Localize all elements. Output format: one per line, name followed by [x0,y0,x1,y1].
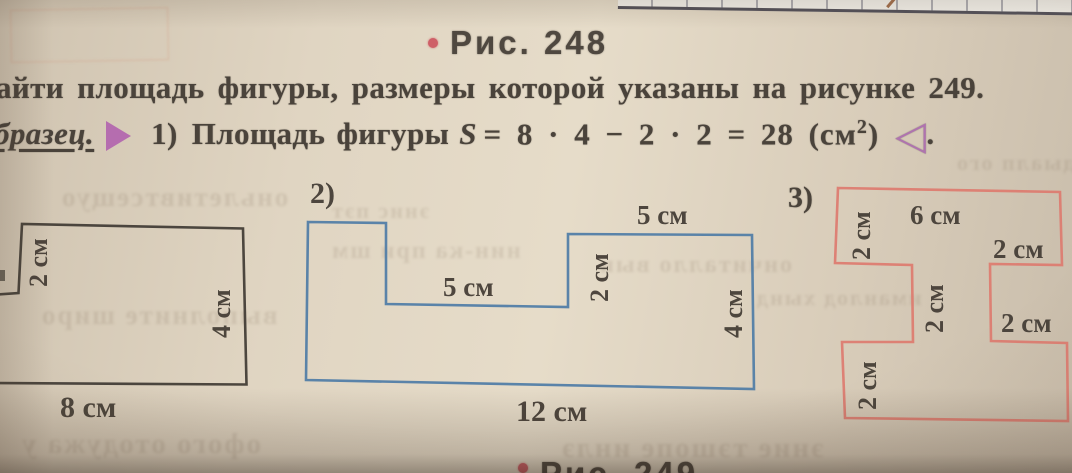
bleedthrough-text: оньлетивтсещуо [60,182,288,213]
task-text: айти площадь фигуры, размеры которой ука… [0,70,984,106]
fig1-side-label: 4 см [207,289,236,338]
end-period: . [926,116,934,152]
fig1-notch-label: 2 см [24,238,53,287]
item-number: 1) [151,116,178,152]
fig2-number: 2) [310,177,335,210]
figure-1-shape: 2 см 4 см 8 см [0,210,270,435]
fig3-right-notch-label: 2 см [1001,308,1052,338]
fig3-number: 3) [788,181,813,215]
example-start-marker-icon [106,121,131,151]
figure-3-shape: 2 см 6 см 2 см 2 см 2 см 2 см [820,175,1072,440]
caption-label: Рис. 249 [540,455,698,473]
fig2-bottom-label: 12 см [516,395,587,428]
fig3-column-label: 2 см [920,284,949,333]
area-formula: S= 8 · 4 − 2 · 2 = 28 (см2) [459,116,879,152]
example-line: бразец. 1) Площадь фигуры S= 8 · 4 − 2 ·… [0,116,934,152]
caption-label: Рис. 248 [450,24,608,62]
bleedthrough-text: тыдыалп ого [955,150,1072,176]
fig3-right-overhang-label: 2 см [993,234,1044,264]
red-bullet-icon [428,38,438,48]
cropped-label-fragment [0,270,5,281]
bleedthrough-frame [10,7,170,64]
fig3-top-width-label: 6 см [910,200,961,230]
item-text: Площадь фигуры [192,116,449,152]
fig3-topbar-height-label: 2 см [847,211,876,260]
fig2-side-label: 4 см [719,289,748,338]
formula-close: ) [868,116,879,151]
formula-variable: S [459,116,477,151]
fig2-middle-label: 5 см [443,272,494,302]
sample-word: бразец. [0,116,94,152]
formula-superscript: 2 [857,116,868,138]
page-edge-ruler [618,0,1072,16]
formula-body: = 8 · 4 − 2 · 2 = 28 (см [483,116,856,151]
figure-caption-248: Рис. 248 [428,24,608,62]
figure-caption-249: Рис. 249 [518,455,698,473]
red-bullet-icon [518,463,528,473]
textbook-photo: оньлетивтсещуо нин-ка при шм ончиталло в… [0,0,1072,473]
fig3-bottombar-label: 2 см [853,361,882,410]
fig2-step-label: 2 см [585,253,614,302]
ruler-mark [886,0,897,8]
fig2-top-label: 5 см [637,200,688,230]
figure-2-shape: 2) 5 см 5 см 2 см 4 см 12 см [290,170,790,435]
fig1-bottom-label: 8 см [60,391,116,424]
